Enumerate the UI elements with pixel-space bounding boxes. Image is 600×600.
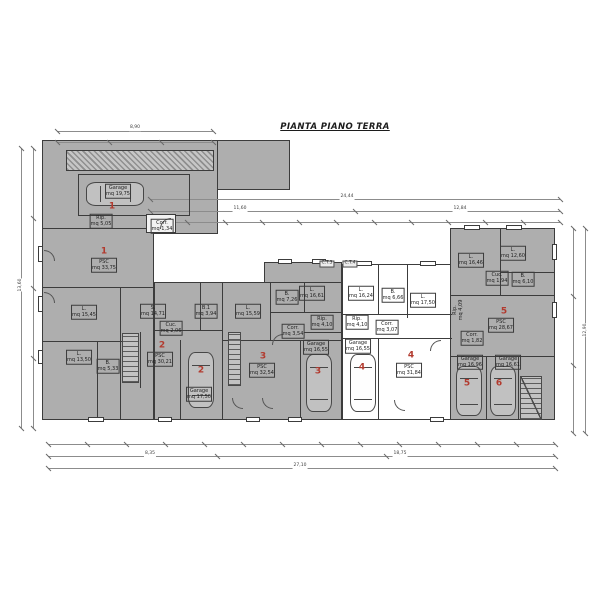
label-garage-5: Garagemq 16,96: [457, 355, 483, 370]
label-letto2-3: L.mq 16,61: [299, 286, 325, 301]
wall-segment: [378, 264, 379, 314]
unit-number-2-garage: 2: [198, 365, 204, 376]
wall-segment: [120, 287, 121, 420]
label-garage-3: Garagemq 16,55: [303, 340, 329, 355]
wall-segment: [300, 340, 301, 420]
wall-segment: [97, 341, 98, 420]
wall-segment: [270, 312, 342, 313]
dim-bottom-seg-a: 8,35: [144, 451, 156, 457]
wall-segment: [486, 356, 487, 420]
window: [356, 261, 372, 266]
window: [464, 225, 480, 230]
window: [278, 259, 292, 264]
window: [552, 244, 557, 260]
label-soggiorno-1: L.mq 15,45: [71, 305, 97, 320]
window: [246, 417, 260, 422]
window: [288, 417, 302, 422]
dim-top-total: 24,44: [340, 194, 355, 200]
label-psc-2: PSCmq 30,21: [147, 352, 173, 367]
dim-left-total: 13,60: [18, 279, 24, 292]
staircase: [228, 332, 241, 386]
unit-number-4-garage: 4: [359, 362, 365, 373]
window: [158, 417, 172, 422]
wall-segment: [42, 287, 154, 288]
label-psc-1: PSCmq 33,75: [91, 258, 117, 273]
label-letto-4: L.mq 16,24: [348, 286, 374, 301]
car-icon: [456, 366, 482, 416]
label-rip-3: Rip.mq 4,10: [311, 315, 334, 330]
dim-line: [57, 131, 213, 132]
label-corr-5: Corr.mq 1,82: [461, 331, 484, 346]
dim-right-total: 12,90: [583, 324, 589, 337]
wall-segment: [407, 264, 408, 318]
label-garage-1: Garagemq 19,75: [105, 184, 131, 199]
label-bagno-1: B.mq 5,33: [97, 359, 120, 374]
dim-line: [150, 222, 560, 223]
label-stanza-2: S.mq 14,71: [140, 304, 166, 319]
label-rip-4: Rip.mq 4,10: [346, 315, 369, 330]
floor-plan: PIANTA PIANO TERRA: [0, 0, 600, 600]
unit-number-4: 4: [408, 350, 414, 361]
ramp-hatch: [66, 150, 214, 171]
unit-number-6-garage: 6: [496, 378, 502, 389]
label-corr-3: Corr.mq 3,54: [282, 324, 305, 339]
drawing-title: PIANTA PIANO TERRA: [280, 122, 390, 132]
dim-line: [573, 228, 574, 433]
wall-segment: [450, 295, 555, 296]
wall-segment: [270, 282, 271, 340]
unit-number-1: 1: [101, 246, 107, 257]
unit-number-5: 5: [501, 306, 507, 317]
window: [38, 246, 43, 262]
wall-segment: [140, 332, 141, 388]
unit-number-3: 3: [260, 351, 266, 362]
label-corr-4: Corr.mq 3,07: [376, 320, 399, 335]
block-top-right-wing: [217, 140, 290, 190]
label-garage-6: Garagemq 16,61: [495, 355, 521, 370]
window: [506, 225, 522, 230]
label-letto2-4: L.mq 17,50: [410, 293, 436, 308]
unit-number-5-garage: 5: [464, 378, 470, 389]
label-letto-1: L.mq 13,50: [66, 350, 92, 365]
staircase: [122, 333, 139, 383]
wall-segment: [304, 332, 342, 333]
window: [38, 296, 43, 312]
label-ct-4: C.T.4: [342, 261, 357, 268]
dim-bottom-total: 27,10: [293, 463, 308, 469]
dim-line: [48, 456, 555, 457]
unit-number-1-garage: 1: [109, 201, 115, 212]
window: [38, 350, 43, 364]
dim-top-seg-a: 11,60: [233, 206, 248, 212]
dim-line: [150, 199, 560, 200]
label-letto2-5: L.mq 12,60: [500, 246, 526, 261]
staircase-external: [520, 376, 542, 420]
window: [430, 417, 444, 422]
label-rip-5: Rip.mq 4,09: [452, 300, 465, 321]
label-bagno-5: B.mq 6,10: [512, 272, 535, 287]
label-garage-2: Garagemq 17,50: [186, 387, 212, 402]
label-garage-4: Garagemq 16,55: [345, 339, 371, 354]
label-letto-3: L.mq 15,59: [235, 304, 261, 319]
label-bagno-3: B.mq 7,26: [276, 290, 299, 305]
window: [420, 261, 436, 266]
wall-segment: [378, 338, 379, 420]
dim-line: [150, 211, 560, 212]
wall-segment: [180, 340, 181, 420]
car-icon: [490, 366, 516, 416]
label-rip-1: Rip.mq 5,05: [90, 214, 113, 229]
wall-segment: [222, 282, 223, 420]
label-psc-3: PSCmq 32,54: [249, 363, 275, 378]
unit-number-3-garage: 3: [315, 366, 321, 377]
label-psc-5: PSCmq 28,67: [488, 318, 514, 333]
label-corr-1: Corr.mq 1,34: [151, 219, 174, 234]
window: [552, 302, 557, 318]
dim-garage-top-total: 8,90: [129, 125, 141, 131]
dim-bottom-seg-b: 18,75: [393, 451, 408, 457]
dim-line: [57, 142, 213, 143]
label-cucina-5: Cuc.mq 1,94: [486, 271, 509, 286]
dim-line: [48, 444, 555, 445]
label-bagno-4: B.mq 6,66: [382, 288, 405, 303]
dim-line: [33, 148, 34, 428]
unit-number-2: 2: [159, 340, 165, 351]
label-letto-5: L.mq 16,46: [458, 253, 484, 268]
car-icon: [306, 354, 332, 412]
wall-segment: [42, 341, 122, 342]
label-cucina-2: Cuc.mq 2,06: [160, 321, 183, 336]
window: [88, 417, 104, 422]
label-psc-4: PSCmq 31,84: [396, 363, 422, 378]
label-ct-3: C.T.3: [319, 261, 334, 268]
dim-top-seg-b: 12,84: [453, 206, 468, 212]
label-bagno-2: B.1mq 3,94: [195, 304, 218, 319]
